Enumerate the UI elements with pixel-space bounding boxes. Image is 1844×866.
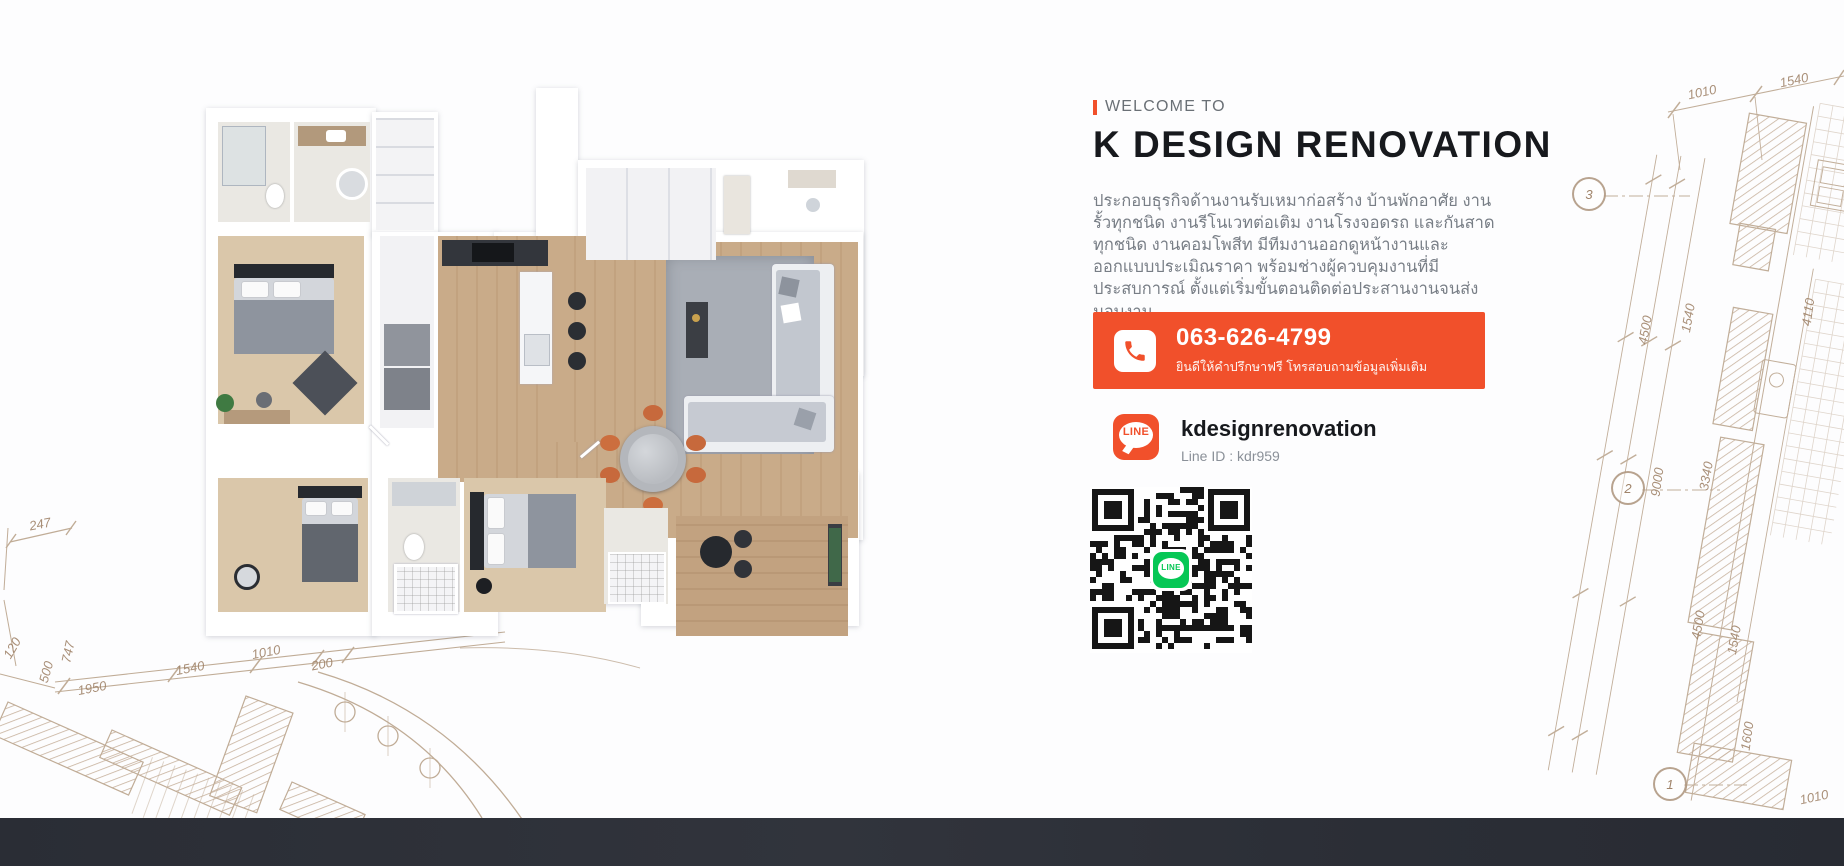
chair (256, 392, 272, 408)
toilet (266, 184, 284, 208)
vanity-counter (392, 482, 456, 506)
line-contact-row[interactable]: LINE kdesignrenovation Line ID : kdr959 (1113, 414, 1377, 464)
company-description: ประกอบธุรกิจด้านงานรับเหมาก่อสร้าง บ้านพ… (1093, 190, 1507, 323)
toilet (404, 534, 424, 560)
phone-call-button[interactable]: 063-626-4799 ยินดีให้คำปรึกษาฟรี โทรสอบถ… (1093, 312, 1485, 389)
qr-finder (1208, 489, 1250, 531)
plan-base (536, 88, 578, 238)
kitchen-island (520, 272, 552, 384)
planter-leaves (829, 528, 841, 582)
accent-bar (1093, 100, 1097, 115)
wardrobe (376, 118, 434, 230)
bed-headboard (298, 486, 362, 498)
bed-blanket (302, 524, 358, 582)
balcony-chair (734, 560, 752, 578)
qr-finder (1092, 607, 1134, 649)
dining-chair (600, 435, 620, 451)
balcony-floor (676, 516, 848, 636)
throw-pillow (778, 276, 799, 297)
floor-lamp (234, 564, 260, 590)
bed-headboard (234, 264, 334, 278)
welcome-label: WELCOME TO (1105, 98, 1226, 116)
pillow (488, 534, 504, 564)
storage (384, 324, 430, 366)
bed-blanket (528, 494, 576, 568)
tv-console (686, 302, 708, 358)
entry-floor (586, 168, 716, 260)
line-text: kdesignrenovation Line ID : kdr959 (1181, 414, 1377, 464)
console-table (724, 176, 750, 234)
page-title: K DESIGN RENOVATION (1093, 124, 1552, 166)
throw-pillow (781, 303, 802, 324)
axis-marker: 3 (1572, 177, 1606, 211)
phone-number: 063-626-4799 (1176, 324, 1427, 352)
pillow (242, 282, 268, 297)
desk (224, 410, 290, 424)
line-icon: LINE (1113, 414, 1159, 460)
washer (336, 168, 368, 200)
balcony-table (700, 536, 732, 568)
dining-chair (686, 435, 706, 451)
welcome-row: WELCOME TO (1093, 98, 1226, 116)
ottoman (476, 578, 492, 594)
kitchen-sink (524, 334, 550, 366)
line-id: Line ID : kdr959 (1181, 448, 1377, 464)
stool (568, 292, 586, 310)
bed-blanket (234, 300, 334, 354)
bathtub (394, 564, 458, 614)
phone-text: 063-626-4799 ยินดีให้คำปรึกษาฟรี โทรสอบถ… (1176, 324, 1427, 377)
line-badge-text: LINE (1113, 426, 1159, 438)
line-qr-code: LINE (1090, 487, 1252, 653)
dining-chair (686, 467, 706, 483)
pillow (488, 498, 504, 528)
stool (568, 352, 586, 370)
floor-plan-render (176, 96, 884, 644)
dining-table-top (628, 434, 678, 484)
shower-tray (608, 552, 666, 604)
qr-finder (1092, 489, 1134, 531)
shower (222, 126, 266, 186)
decor-vase (692, 314, 700, 322)
blueprint-drawing-right (1540, 50, 1844, 820)
axis-marker: 2 (1611, 471, 1645, 505)
axis-marker: 1 (1653, 767, 1687, 801)
bed-headboard (470, 492, 484, 570)
phone-icon (1114, 330, 1156, 372)
mirror (804, 196, 822, 214)
qr-line-badge: LINE (1150, 549, 1192, 591)
sink (326, 130, 346, 142)
stool (568, 322, 586, 340)
pillow (306, 502, 326, 515)
line-badge-text: LINE (1153, 563, 1189, 572)
qr-line-badge-green: LINE (1153, 552, 1189, 588)
pillow (332, 502, 352, 515)
footer-bar (0, 818, 1844, 866)
storage (384, 368, 430, 410)
shelf (788, 170, 836, 188)
line-account-name: kdesignrenovation (1181, 416, 1377, 442)
balcony-chair (734, 530, 752, 548)
pillow (274, 282, 300, 297)
dining-chair (643, 405, 663, 421)
stove (472, 243, 514, 262)
plant (216, 394, 234, 412)
phone-subtitle: ยินดีให้คำปรึกษาฟรี โทรสอบถามข้อมูลเพิ่ม… (1176, 357, 1427, 377)
